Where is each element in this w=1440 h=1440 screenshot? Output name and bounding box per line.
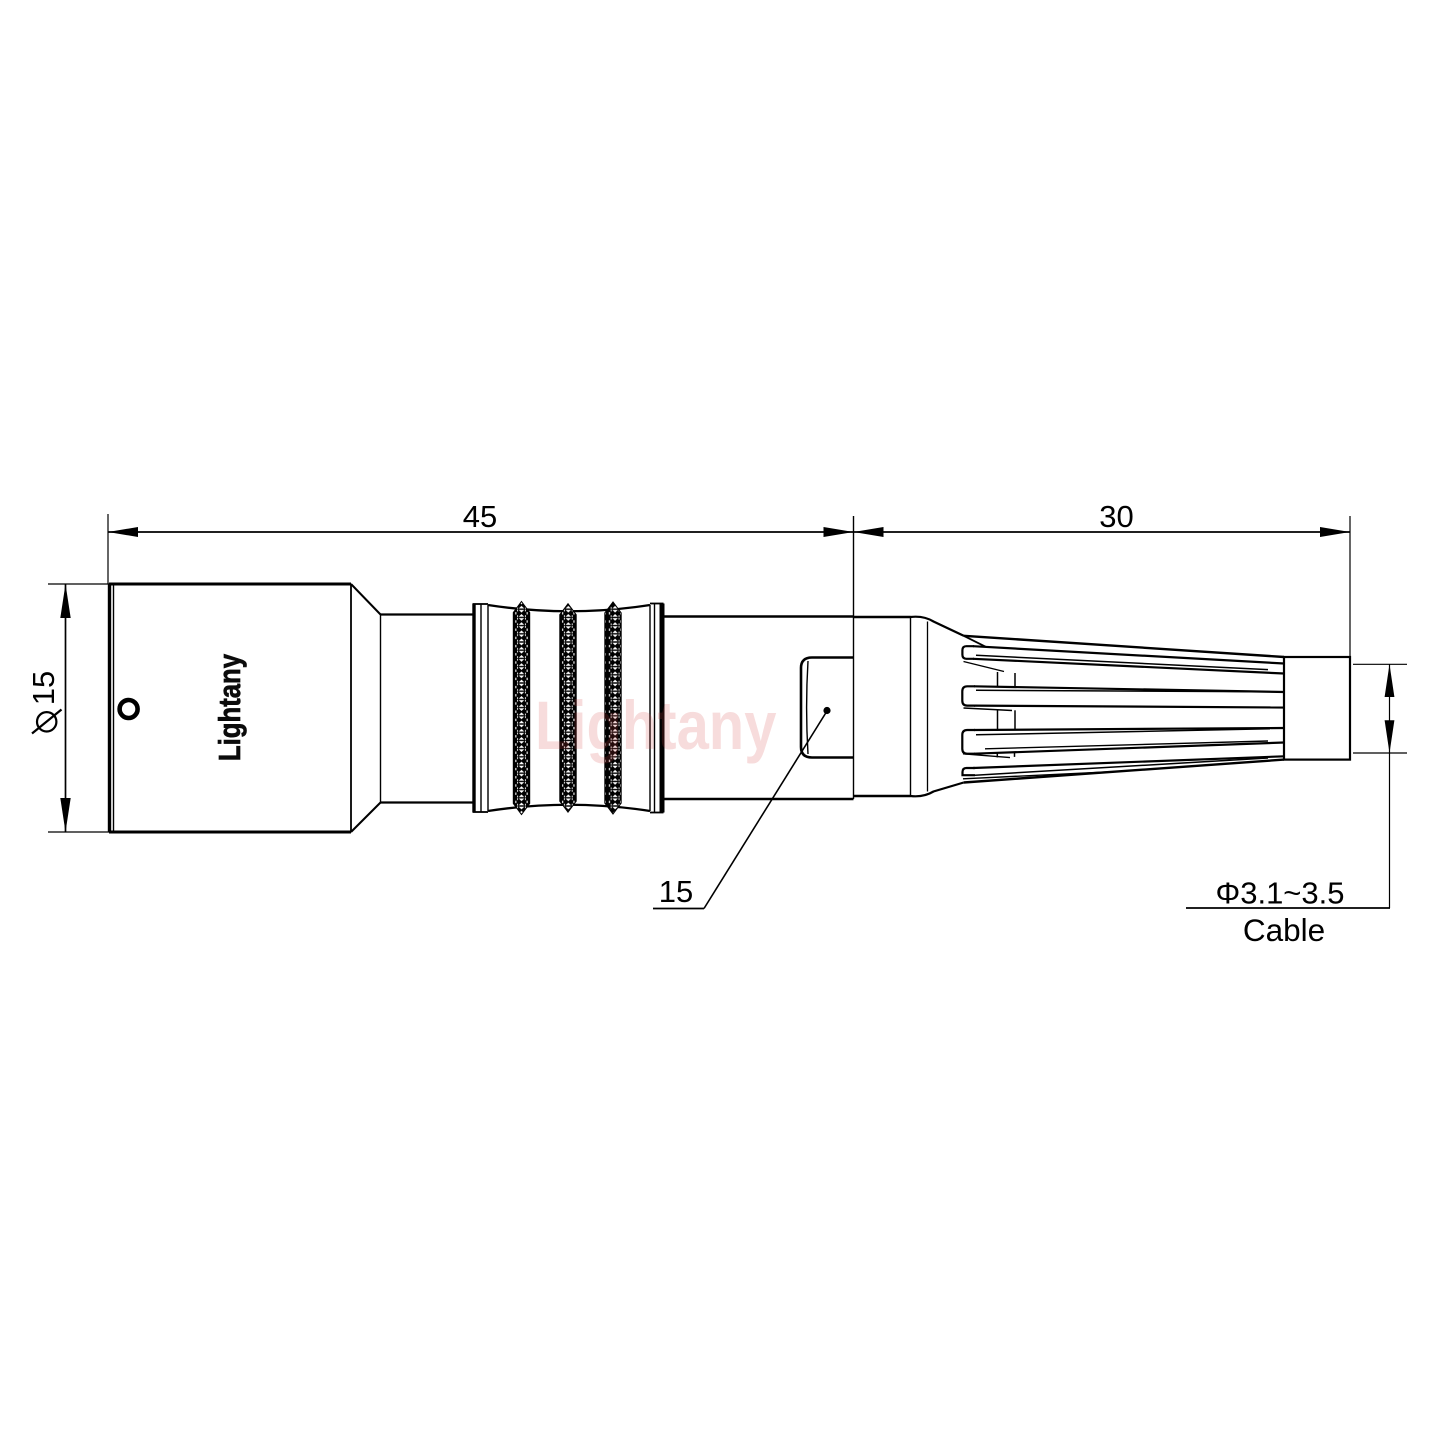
svg-text:45: 45 — [463, 499, 497, 534]
svg-text:Lightany: Lightany — [213, 654, 248, 761]
svg-text:15: 15 — [26, 671, 61, 705]
svg-text:15: 15 — [659, 874, 693, 909]
svg-text:30: 30 — [1099, 499, 1133, 534]
svg-text:Lightany: Lightany — [535, 686, 777, 764]
svg-text:Cable: Cable — [1243, 912, 1325, 948]
svg-text:Φ3.1~3.5: Φ3.1~3.5 — [1215, 876, 1344, 911]
